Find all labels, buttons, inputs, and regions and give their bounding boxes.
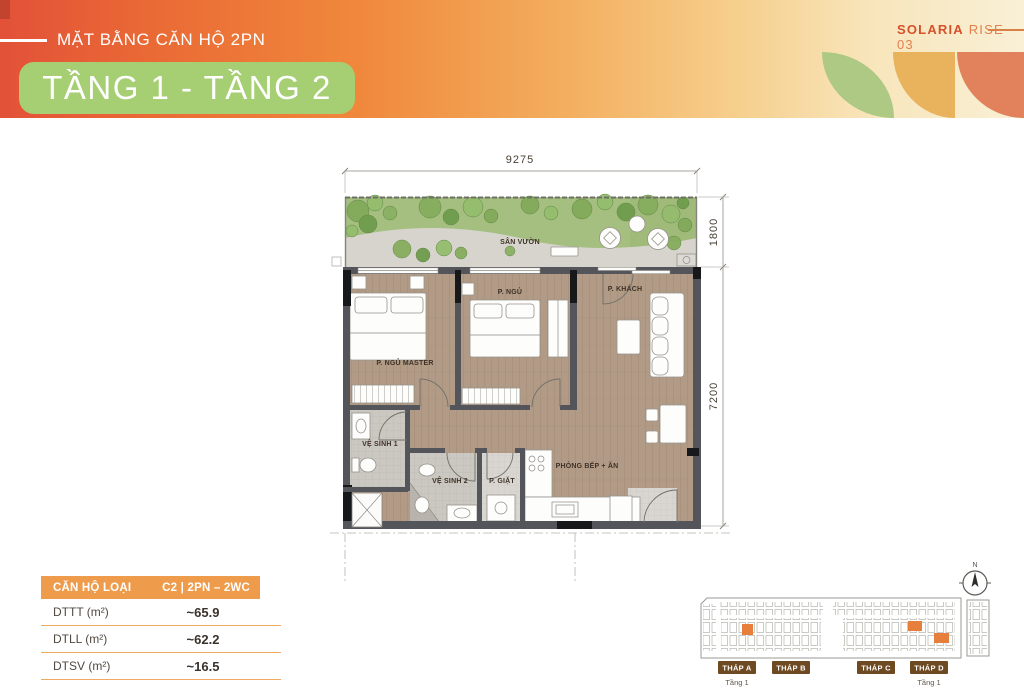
sliding-door xyxy=(632,271,670,274)
floor-badge: TẦNG 1 - TẦNG 2 xyxy=(19,62,355,114)
spec-table: CĂN HỘ LOẠI C2 | 2PN – 2WC DTTT (m²) ~65… xyxy=(41,576,281,680)
tower-labels: THÁP A THÁP B THÁP C THÁP D Tầng 1 Tầng … xyxy=(718,661,948,687)
dim-main-depth: 7200 xyxy=(708,382,720,410)
room-label-bath2: VỆ SINH 2 xyxy=(432,476,468,485)
spec-row-value: ~16.5 xyxy=(151,659,255,674)
dining-chair xyxy=(646,431,658,443)
garden-area: SÂN VƯỜN xyxy=(332,194,697,267)
room-label-laundry: P. GIẶT xyxy=(489,476,515,485)
spec-row-label: DTSV (m²) xyxy=(53,659,151,673)
spec-header-label: CĂN HỘ LOẠI xyxy=(53,582,131,594)
dining-chair xyxy=(646,409,658,421)
brochure-page: MẶT BẰNG CĂN HỘ 2PN TẦNG 1 - TẦNG 2 SOLA… xyxy=(0,0,1024,689)
tower-d-floor: Tầng 1 xyxy=(917,678,940,687)
hanging-chair xyxy=(600,228,621,249)
site-key-plan: N THÁP A THÁP B THÁP C THÁP D Tầng 1 Tầ xyxy=(693,556,1024,689)
floor-plan: 9275 1800 7200 xyxy=(330,143,735,595)
nightstand xyxy=(410,276,424,289)
compass-icon: N xyxy=(959,562,991,595)
brand-name: SOLARIA xyxy=(897,22,964,37)
room-label-bedroom: P. NGỦ xyxy=(498,287,522,296)
dim-garden-depth: 1800 xyxy=(708,218,720,246)
highlighted-unit xyxy=(934,633,949,643)
spec-row-label: DTLL (m²) xyxy=(53,632,151,646)
washing-machine xyxy=(487,495,515,521)
grid-marker xyxy=(332,257,341,266)
master-wardrobe xyxy=(352,385,414,403)
building-outline xyxy=(701,598,989,658)
sliding-door xyxy=(598,267,636,270)
highlighted-unit xyxy=(908,621,922,631)
page-eyebrow: MẶT BẰNG CĂN HỘ 2PN xyxy=(57,30,266,50)
dining-table xyxy=(660,405,686,443)
table-row: DTLL (m²) ~62.2 xyxy=(41,626,281,653)
bath1-vanity xyxy=(352,413,370,439)
spec-row-value: ~65.9 xyxy=(151,605,255,620)
room-label-bath1: VỆ SINH 1 xyxy=(362,439,398,448)
tower-b-label: THÁP B xyxy=(776,664,806,673)
coffee-table xyxy=(617,320,640,354)
bath2-vanity xyxy=(447,505,477,522)
tower-a-floor: Tầng 1 xyxy=(725,678,748,687)
toilet xyxy=(415,497,429,513)
garden-table xyxy=(629,216,645,232)
tower-d-label: THÁP D xyxy=(914,664,944,673)
tower-a-label: THÁP A xyxy=(722,664,752,673)
spec-row-value: ~62.2 xyxy=(151,632,255,647)
ac-unit xyxy=(677,254,696,266)
garden-bench xyxy=(551,247,578,256)
table-row: DTTT (m²) ~65.9 xyxy=(41,599,281,626)
nightstand xyxy=(352,276,366,289)
room-label-garden: SÂN VƯỜN xyxy=(500,237,540,246)
compass-north-label: N xyxy=(972,562,977,569)
brand-rule xyxy=(988,29,1024,31)
corner-tag xyxy=(0,0,10,19)
spec-row-label: DTTT (m²) xyxy=(53,605,151,619)
room-label-master: P. NGỦ MASTER xyxy=(376,358,433,367)
brand: SOLARIA RISE – 03 xyxy=(897,22,1024,52)
shaft xyxy=(352,493,382,527)
nightstand xyxy=(462,283,474,295)
room-label-living: P. KHÁCH xyxy=(608,284,643,293)
bedroom-wardrobe-low xyxy=(462,388,520,404)
fridge xyxy=(610,496,632,522)
spec-header-value: C2 | 2PN – 2WC xyxy=(162,582,250,594)
dim-width: 9275 xyxy=(506,154,534,166)
spec-table-header: CĂN HỘ LOẠI C2 | 2PN – 2WC xyxy=(41,576,260,599)
toilet xyxy=(352,458,359,472)
table-row: DTSV (m²) ~16.5 xyxy=(41,653,281,680)
tower-c-label: THÁP C xyxy=(861,664,891,673)
eyebrow-rule xyxy=(0,39,47,42)
highlighted-unit xyxy=(742,624,753,635)
hanging-chair xyxy=(648,229,669,250)
page-title: TẦNG 1 - TẦNG 2 xyxy=(42,69,332,107)
bath2-sink xyxy=(419,464,435,476)
